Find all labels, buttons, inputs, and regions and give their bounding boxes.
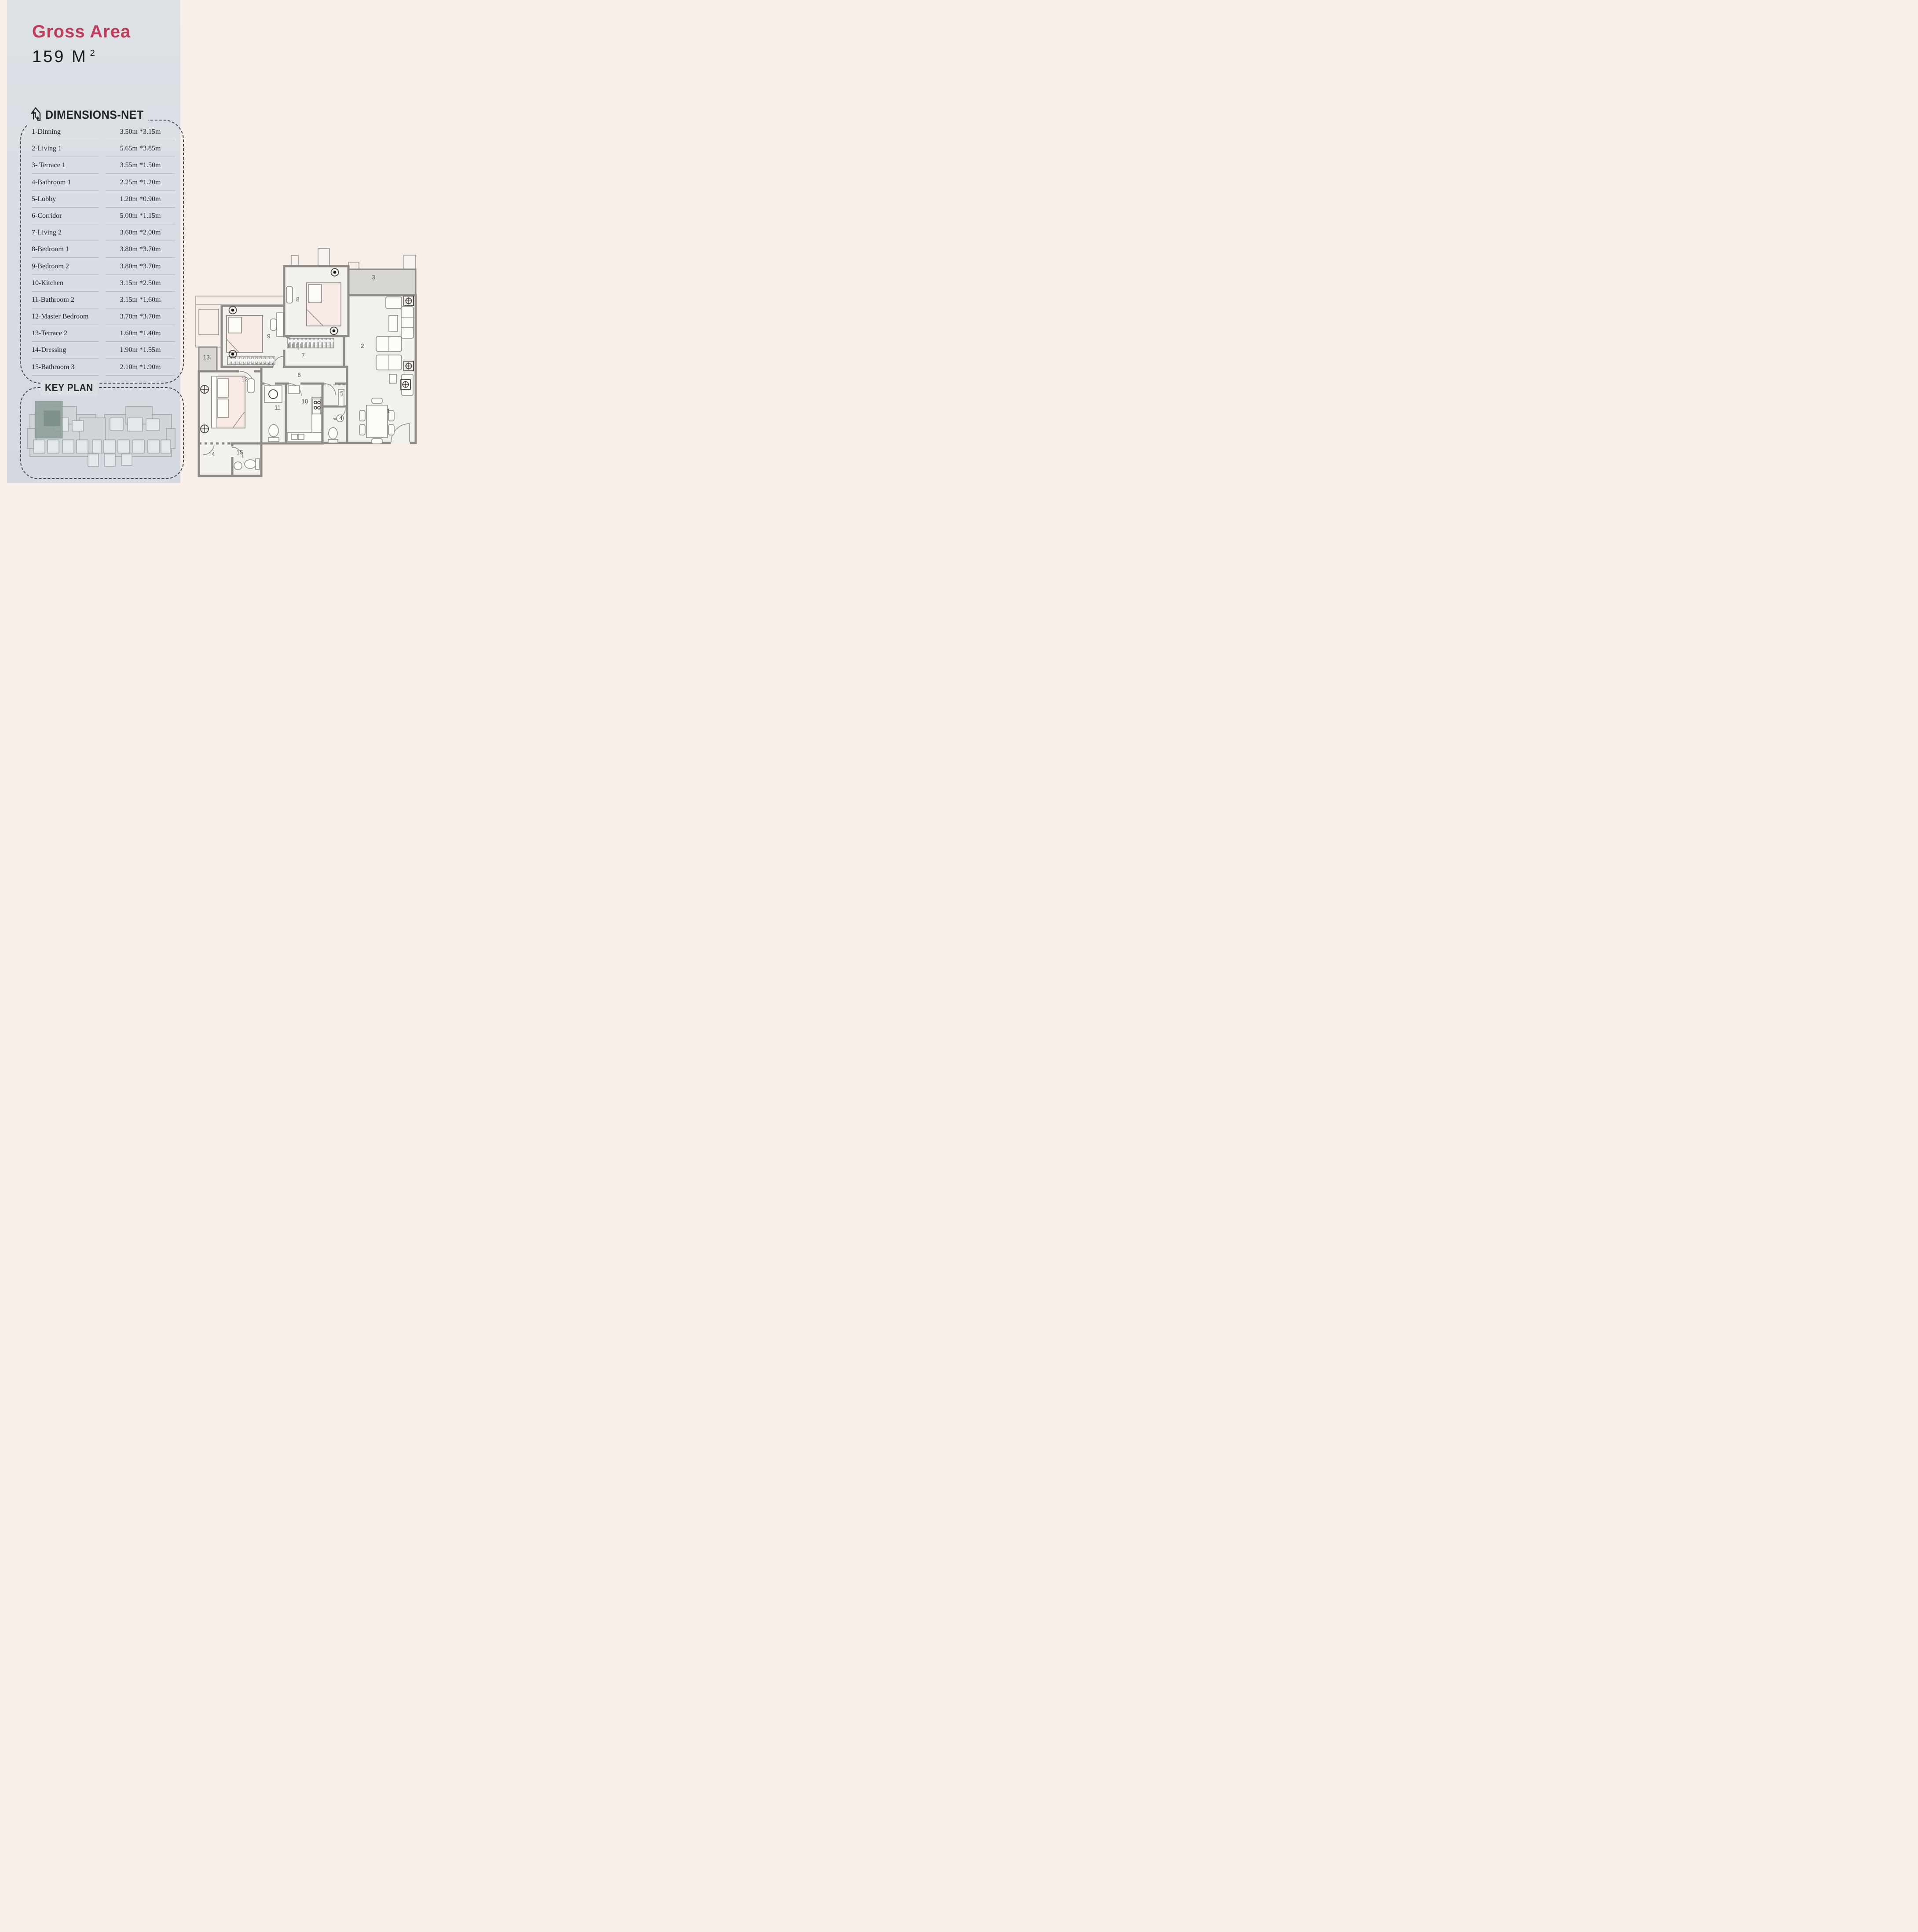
table-row: 7-Living 23.60m *2.00m bbox=[20, 227, 182, 243]
room-dimensions: 3.50m *3.15m bbox=[106, 126, 175, 140]
room-name: 8-Bedroom 1 bbox=[32, 243, 99, 258]
room-dimensions: 3.80m *3.70m bbox=[106, 243, 175, 258]
table-row: 6-Corridor5.00m *1.15m bbox=[20, 210, 182, 227]
dimensions-net-header: DIMENSIONS-NET bbox=[25, 106, 148, 124]
floor-plan: 1 2 3 4 5 6 7 8 9 10 11 12 13. 14 15 bbox=[187, 244, 433, 477]
table-row: 12-Master Bedroom3.70m *3.70m bbox=[20, 311, 182, 327]
key-plan-header: KEY PLAN bbox=[40, 380, 98, 396]
room-name: 14-Dressing bbox=[32, 344, 99, 359]
room-label-bed1: 8 bbox=[296, 296, 300, 303]
room-name: 6-Corridor bbox=[32, 210, 99, 224]
room-dimensions: 1.90m *1.55m bbox=[106, 344, 175, 359]
table-row: 3- Terrace 13.55m *1.50m bbox=[20, 159, 182, 176]
room-dimensions: 3.70m *3.70m bbox=[106, 311, 175, 325]
room-label-terrace2: 13. bbox=[203, 354, 212, 361]
room-label-bath1: 4 bbox=[339, 415, 343, 421]
room-name: 4-Bathroom 1 bbox=[32, 176, 99, 191]
table-row: 13-Terrace 21.60m *1.40m bbox=[20, 327, 182, 344]
room-name: 2-Living 1 bbox=[32, 143, 99, 157]
room-name: 13-Terrace 2 bbox=[32, 327, 99, 342]
room-name: 3- Terrace 1 bbox=[32, 159, 99, 174]
room-dimensions: 1.60m *1.40m bbox=[106, 327, 175, 342]
room-label-lobby: 5 bbox=[340, 390, 344, 397]
room-dimensions: 1.20m *0.90m bbox=[106, 193, 175, 208]
table-row: 11-Bathroom 23.15m *1.60m bbox=[20, 294, 182, 311]
gross-area-value: 159 M2 bbox=[32, 48, 95, 66]
house-sync-icon bbox=[29, 106, 42, 124]
room-name: 9-Bedroom 2 bbox=[32, 260, 99, 275]
area-superscript: 2 bbox=[90, 48, 95, 58]
room-name: 15-Bathroom 3 bbox=[32, 361, 99, 376]
gross-area-title: Gross Area bbox=[32, 22, 131, 42]
room-label-bed2: 9 bbox=[267, 333, 271, 340]
room-label-kitchen: 10 bbox=[301, 398, 308, 405]
room-name: 5-Lobby bbox=[32, 193, 99, 208]
room-label-living1: 2 bbox=[361, 343, 364, 349]
info-panel: Gross Area 159 M2 DIMENSIONS-NET 1-Dinni… bbox=[7, 0, 180, 483]
key-plan-highlighted-unit bbox=[35, 401, 62, 438]
room-label-terrace1: 3 bbox=[372, 274, 375, 281]
table-row: 15-Bathroom 32.10m *1.90m bbox=[20, 361, 182, 378]
room-dimensions: 3.60m *2.00m bbox=[106, 227, 175, 241]
key-plan-label: KEY PLAN bbox=[45, 382, 93, 394]
room-name: 7-Living 2 bbox=[32, 227, 99, 241]
brochure-page: { "panel": { "title": "Gross Area", "are… bbox=[0, 0, 479, 483]
table-row: 8-Bedroom 13.80m *3.70m bbox=[20, 243, 182, 260]
room-dimensions: 2.25m *1.20m bbox=[106, 176, 175, 191]
room-label-dressing: 14 bbox=[208, 451, 215, 457]
room-name: 10-Kitchen bbox=[32, 277, 99, 292]
dimensions-net-label: DIMENSIONS-NET bbox=[45, 108, 144, 122]
room-label-living2: 7 bbox=[301, 352, 305, 359]
key-plan-drawing bbox=[26, 398, 176, 472]
table-row: 10-Kitchen3.15m *2.50m bbox=[20, 277, 182, 294]
table-row: 2-Living 15.65m *3.85m bbox=[20, 143, 182, 159]
room-dimensions: 3.15m *1.60m bbox=[106, 294, 175, 308]
dimensions-table: 1-Dinning3.50m *3.15m 2-Living 15.65m *3… bbox=[20, 126, 182, 378]
room-label-bath3: 15 bbox=[236, 449, 243, 456]
table-row: 9-Bedroom 23.80m *3.70m bbox=[20, 260, 182, 277]
room-name: 1-Dinning bbox=[32, 126, 99, 140]
terrace-1 bbox=[344, 269, 416, 296]
table-row: 1-Dinning3.50m *3.15m bbox=[20, 126, 182, 143]
room-dimensions: 3.80m *3.70m bbox=[106, 260, 175, 275]
room-dimensions: 2.10m *1.90m bbox=[106, 361, 175, 376]
table-row: 5-Lobby1.20m *0.90m bbox=[20, 193, 182, 210]
room-dimensions: 3.55m *1.50m bbox=[106, 159, 175, 174]
room-label-dining: 1 bbox=[387, 408, 390, 414]
room-name: 11-Bathroom 2 bbox=[32, 294, 99, 308]
room-dimensions: 5.65m *3.85m bbox=[106, 143, 175, 157]
room-dimensions: 3.15m *2.50m bbox=[106, 277, 175, 292]
room-label-corridor: 6 bbox=[297, 372, 301, 378]
area-number: 159 M bbox=[32, 48, 88, 66]
table-row: 14-Dressing1.90m *1.55m bbox=[20, 344, 182, 361]
room-dimensions: 5.00m *1.15m bbox=[106, 210, 175, 224]
room-name: 12-Master Bedroom bbox=[32, 311, 99, 325]
room-label-master: 12 bbox=[241, 376, 248, 383]
table-row: 4-Bathroom 12.25m *1.20m bbox=[20, 176, 182, 193]
room-label-bath2: 11 bbox=[275, 404, 281, 411]
